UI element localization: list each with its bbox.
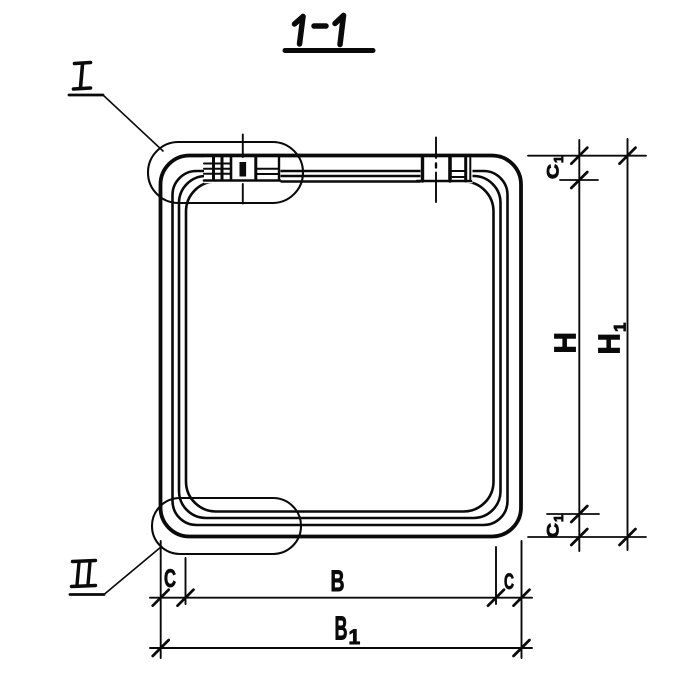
svg-text:B: B <box>331 565 345 598</box>
svg-text:C: C <box>504 569 514 594</box>
svg-text:H: H <box>548 332 583 354</box>
svg-text:C: C <box>164 565 176 593</box>
